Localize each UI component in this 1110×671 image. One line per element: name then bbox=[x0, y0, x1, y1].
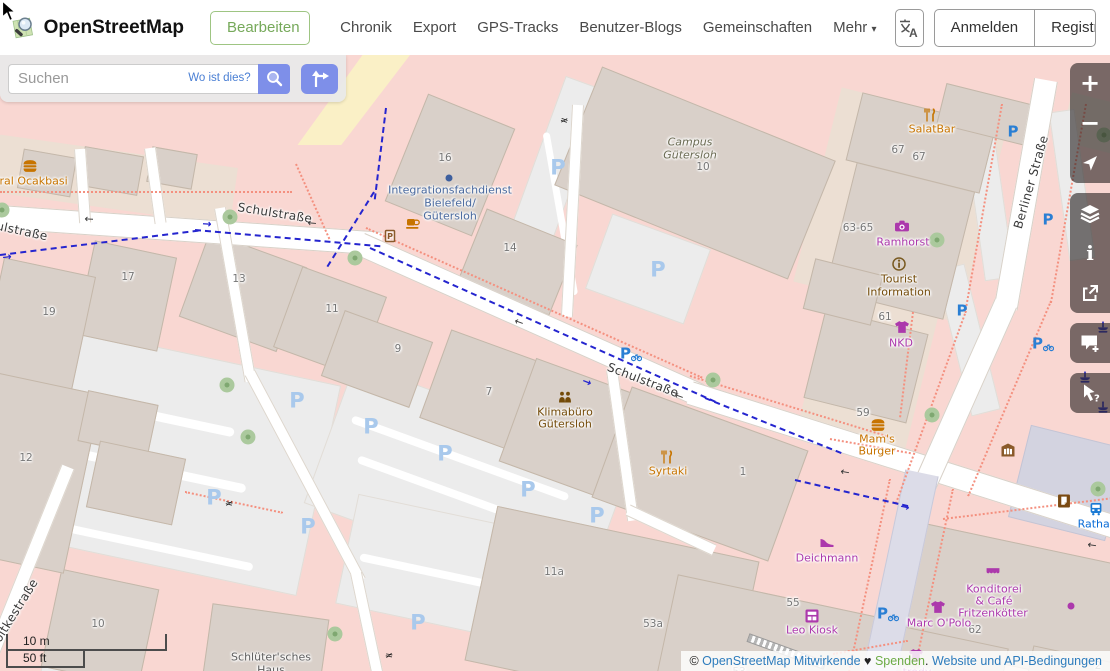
main-nav: ChronikExportGPS-TracksBenutzer-BlogsGem… bbox=[340, 19, 812, 36]
building bbox=[201, 603, 330, 671]
scale-imperial: 50 ft bbox=[6, 651, 85, 668]
directions-button[interactable] bbox=[301, 64, 338, 94]
footpath bbox=[0, 191, 292, 193]
attribution-bar: © OpenStreetMap Mitwirkende ♥ Spenden. W… bbox=[681, 651, 1110, 671]
edit-button-label[interactable]: Bearbeiten bbox=[211, 12, 310, 44]
osm-credit-link[interactable]: OpenStreetMap Mitwirkende bbox=[702, 654, 860, 668]
scale-metric: 10 m bbox=[6, 634, 167, 651]
search-button[interactable] bbox=[258, 64, 291, 94]
nav-link-chronik[interactable]: Chronik bbox=[340, 19, 392, 36]
tree-icon bbox=[328, 627, 343, 642]
layers-control-group: i bbox=[1070, 193, 1110, 313]
search-icon bbox=[266, 70, 283, 87]
map-label: ≠ bbox=[384, 650, 394, 662]
add-note-button[interactable] bbox=[1070, 323, 1110, 363]
where-is-this-link[interactable]: Wo ist dies? bbox=[188, 72, 250, 84]
more-label[interactable]: Mehr bbox=[833, 19, 867, 36]
map-label: ← bbox=[1087, 538, 1098, 552]
search-panel: Wo ist dies? bbox=[0, 55, 346, 102]
nav-link-gemeinschaften[interactable]: Gemeinschaften bbox=[703, 19, 812, 36]
zoom-control-group: + − bbox=[1070, 63, 1110, 183]
note-control-group bbox=[1070, 323, 1110, 363]
bookbox-icon bbox=[1002, 444, 1015, 457]
osm-logo bbox=[10, 11, 36, 45]
shoe-icon bbox=[820, 539, 835, 548]
donate-link[interactable]: Spenden bbox=[875, 654, 925, 668]
query-features-button[interactable]: ? bbox=[1070, 373, 1110, 413]
zoom-in-button[interactable]: + bbox=[1070, 63, 1110, 103]
nav-link-export[interactable]: Export bbox=[413, 19, 456, 36]
top-navbar: OpenStreetMap Bearbeiten ▾ ChronikExport… bbox=[0, 0, 1110, 55]
cup-icon bbox=[406, 218, 420, 230]
pblue-icon: P bbox=[1043, 213, 1054, 228]
nav-link-benutzer-blogs[interactable]: Benutzer-Blogs bbox=[579, 19, 682, 36]
share-icon bbox=[1081, 284, 1099, 302]
language-button[interactable]: A bbox=[895, 9, 924, 47]
login-button[interactable]: Anmelden bbox=[935, 10, 1036, 46]
locate-button[interactable] bbox=[1070, 143, 1110, 183]
map-canvas[interactable]: PPPPPPPPPPPPPPPPPP SchulstraßeSchulstraß… bbox=[0, 55, 1110, 671]
directions-icon bbox=[310, 70, 330, 88]
terms-link[interactable]: Website und API-Bedingungen bbox=[932, 654, 1102, 668]
zoom-out-button[interactable]: − bbox=[1070, 103, 1110, 143]
note-icon bbox=[1080, 334, 1100, 353]
register-button[interactable]: Registrieren bbox=[1035, 10, 1096, 46]
auth-buttons: Anmelden Registrieren bbox=[934, 9, 1096, 47]
site-title: OpenStreetMap bbox=[44, 17, 184, 39]
chevron-down-icon: ▾ bbox=[871, 24, 876, 35]
map-label: ← bbox=[839, 465, 850, 479]
svg-text:?: ? bbox=[1094, 394, 1100, 404]
svg-text:A: A bbox=[909, 26, 918, 39]
copyright-symbol: © bbox=[689, 654, 702, 668]
heart-icon: ♥ bbox=[861, 654, 875, 668]
map-label: Deichmann bbox=[796, 552, 859, 565]
layers-icon bbox=[1080, 204, 1100, 223]
edit-button[interactable]: Bearbeiten ▾ bbox=[210, 11, 310, 45]
nav-link-gps-tracks[interactable]: GPS-Tracks bbox=[477, 19, 558, 36]
locate-icon bbox=[1081, 154, 1099, 172]
layers-button[interactable] bbox=[1070, 193, 1110, 233]
share-button[interactable] bbox=[1070, 273, 1110, 313]
map-controls: + − i bbox=[1070, 63, 1110, 423]
query-icon: ? bbox=[1080, 383, 1101, 403]
query-control-group: ? bbox=[1070, 373, 1110, 413]
cycle-route bbox=[374, 108, 387, 200]
more-menu[interactable]: Mehr ▾ bbox=[833, 19, 876, 36]
info-button[interactable]: i bbox=[1070, 233, 1110, 273]
translate-icon: A bbox=[897, 17, 921, 39]
cycle-route bbox=[795, 479, 908, 507]
